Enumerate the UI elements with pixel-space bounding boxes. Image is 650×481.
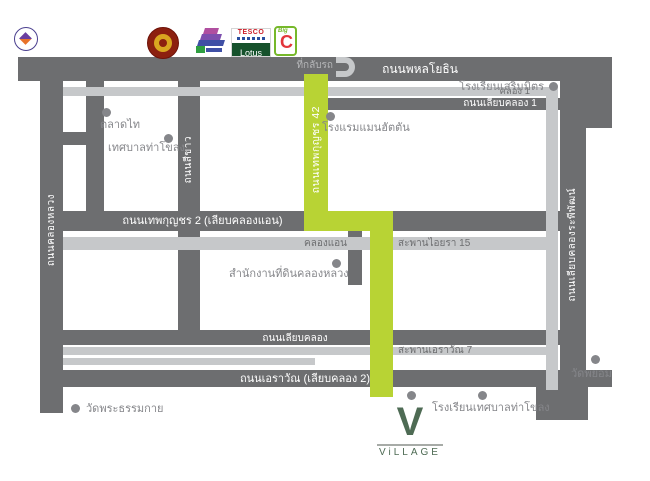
v-village-logo: V ViLLAGE: [370, 401, 450, 458]
talaad-thai-market-logo: [196, 28, 226, 54]
thammasat-university-logo: [147, 27, 179, 59]
market-logo-text-bar: [206, 48, 222, 52]
road-label-liap-khlong-1: ถนนเลียบคลอง 1: [430, 98, 570, 110]
dot-wat-phra-dhammakaya: [71, 404, 80, 413]
road-label-liap-khlong: ถนนเลียบคลอง: [230, 332, 360, 345]
diamond-icon: [19, 32, 32, 45]
road-label-rapiphat: ถนนเลียบคลองระพีพัฒน์: [560, 145, 586, 345]
big-c-letter: C: [280, 32, 293, 52]
road-label-khlong-luang: ถนนคลองหลวง: [40, 185, 63, 275]
road-label-thepkunchorn-42: ถนนเทพกุญชร 42: [304, 85, 328, 215]
dot-wat-phayom: [591, 355, 600, 364]
bangkok-university-logo: [14, 27, 38, 51]
road-rung: [63, 132, 104, 145]
place-label-wat-phra-dhammakaya: วัดพระธรรมกาย: [86, 403, 163, 417]
canal-label-khlong-an: คลองแอน: [267, 239, 347, 249]
u-turn-icon: [336, 57, 355, 77]
dot-sermmit-school: [549, 82, 558, 91]
route-map: ถนนพหลโยธิน ถนนเลียบคลอง 1 ถนนเทพกุญชร 2…: [0, 0, 650, 481]
road-label-si-khao: ถนนสีขาว: [178, 110, 200, 210]
lotus-wordmark: Lotus: [240, 48, 262, 58]
bridge-label-aiyara-15: สะพานไอยรา 15: [398, 239, 528, 249]
road-label-thepkunchorn-2: ถนนเทพกุญชร 2 (เลียบคลองแอน): [100, 214, 305, 228]
v-village-letter: V: [370, 401, 450, 443]
place-label-thakhlong-municipality: เทศบาลท่าโขลง: [108, 142, 185, 156]
canal-erawan-lower: [63, 358, 315, 365]
canal-rapiphat: [546, 96, 558, 390]
route-lower: [370, 211, 393, 397]
road-label-phahonyothin: ถนนพหลโยธิน: [360, 62, 480, 78]
uturn-label: ที่กลับรถ: [293, 60, 333, 73]
dot-land-office: [332, 259, 341, 268]
tesco-lotus-logo: TESCO Lotus: [231, 28, 271, 57]
dot-thakhlong-school-2: [478, 391, 487, 400]
place-label-talaad-thai: ตลาดไท: [100, 119, 140, 133]
v-village-rule: [377, 444, 443, 446]
road-corner-northeast: [586, 57, 612, 128]
bridge-label-erawan-7: สะพานเอราวัณ 7: [398, 346, 528, 356]
place-label-sermmit-school: โรงเรียนเสริมมิตร: [430, 81, 544, 95]
dot-manhattan-hotel: [326, 112, 335, 121]
big-c-logo: Big C: [274, 26, 297, 56]
tesco-wordmark: TESCO: [232, 29, 270, 37]
place-label-manhattan-hotel: โรงแรมแมนฮัตตัน: [322, 122, 410, 136]
dot-talaad-thai: [102, 108, 111, 117]
lotus-band: Lotus: [232, 43, 270, 56]
place-label-land-office: สำนักงานที่ดินคลองหลวง: [229, 268, 345, 282]
v-village-wordmark: ViLLAGE: [370, 447, 450, 458]
tesco-dashes: [237, 37, 265, 40]
market-logo-green-badge: [196, 46, 205, 53]
thammasat-center: [159, 39, 167, 47]
road-label-erawan: ถนนเอราวัณ (เลียบคลอง 2): [225, 372, 385, 386]
place-label-wat-phayom: วัดพยอม: [571, 368, 612, 382]
dot-thakhlong-school-1: [407, 391, 416, 400]
